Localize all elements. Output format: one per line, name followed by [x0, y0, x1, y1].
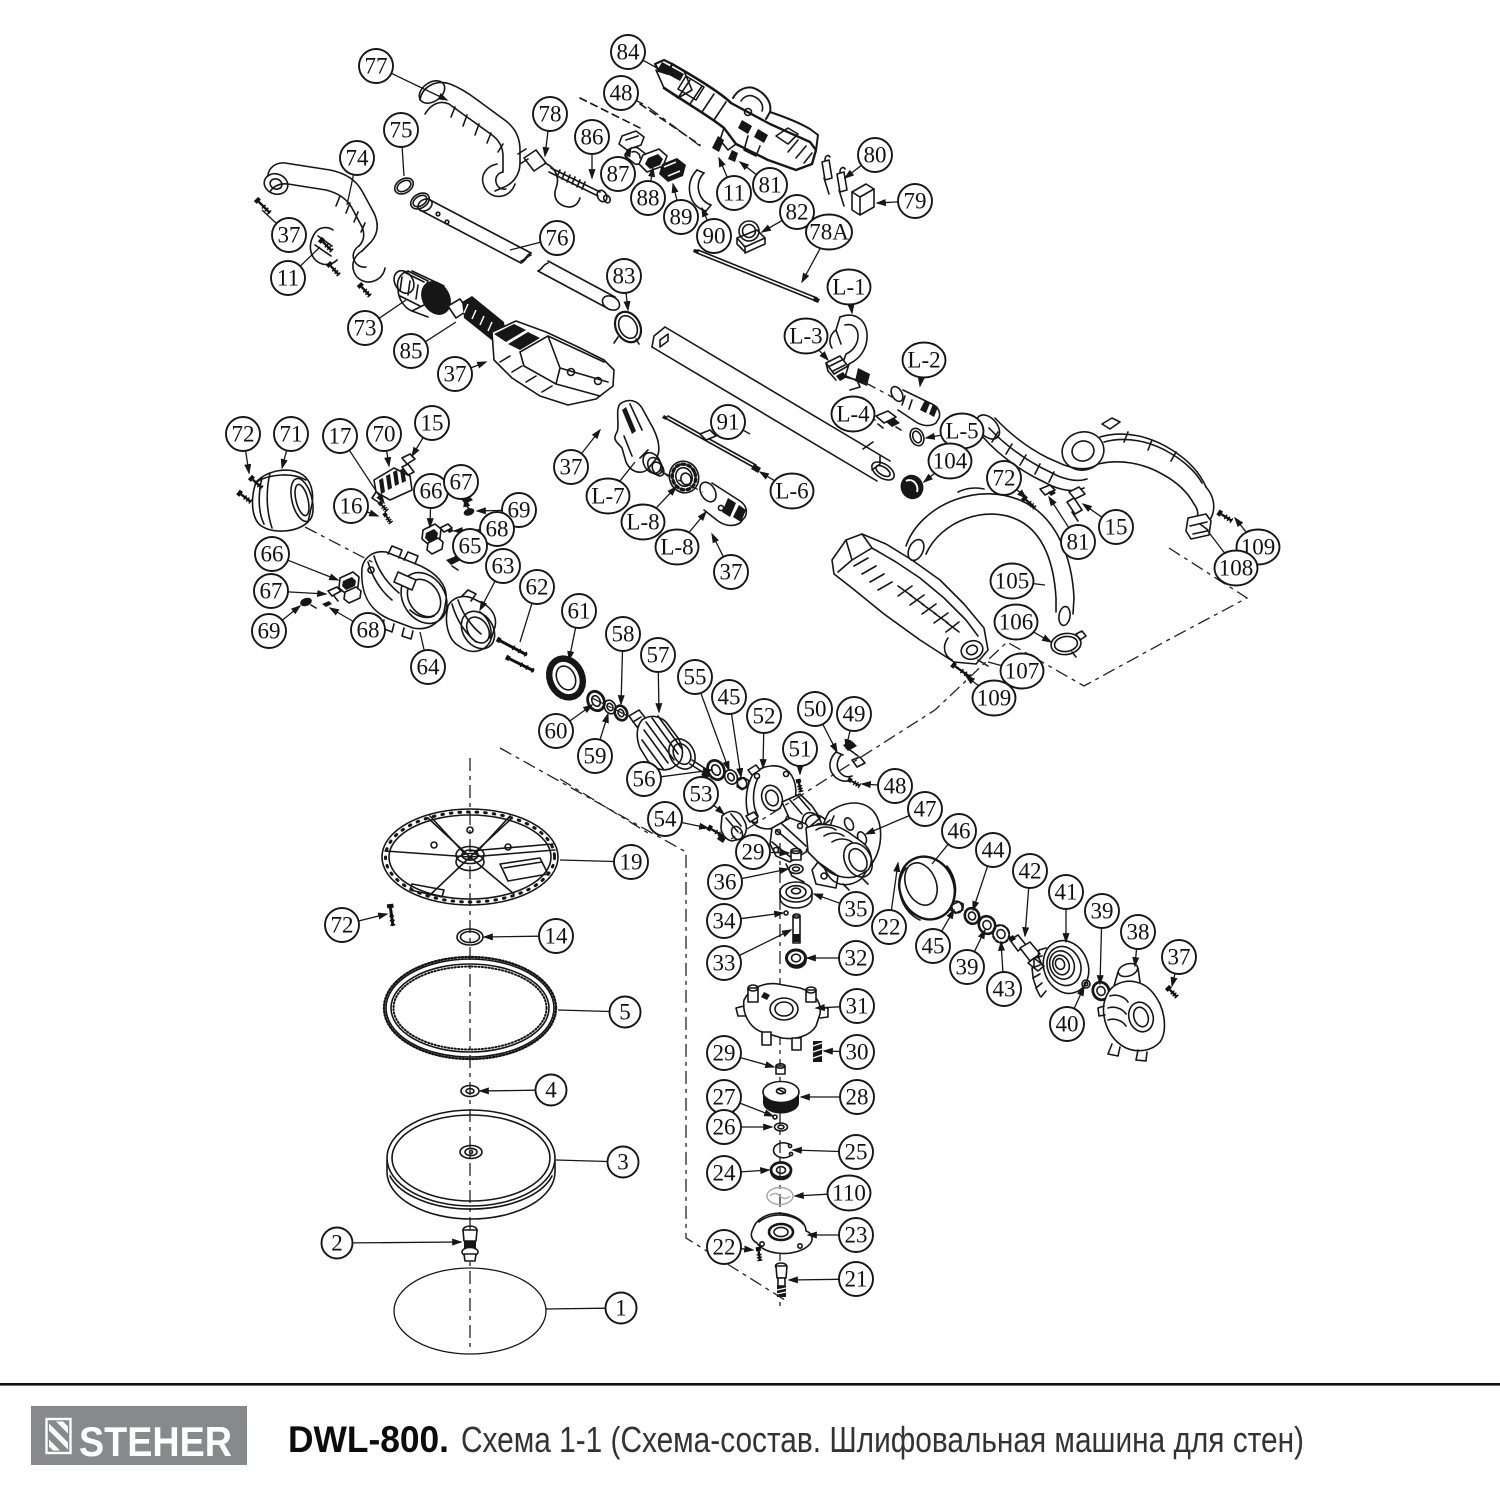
svg-text:78A: 78A — [809, 220, 849, 245]
svg-text:29: 29 — [742, 840, 765, 865]
svg-text:65: 65 — [459, 534, 482, 559]
svg-text:22: 22 — [713, 1235, 736, 1260]
svg-text:78: 78 — [539, 102, 562, 127]
svg-text:85: 85 — [400, 339, 423, 364]
svg-text:80: 80 — [864, 143, 887, 168]
svg-text:27: 27 — [713, 1085, 736, 1110]
svg-text:56: 56 — [633, 767, 656, 792]
svg-text:L-1: L-1 — [832, 275, 865, 300]
svg-text:50: 50 — [804, 697, 827, 722]
svg-text:L-3: L-3 — [789, 324, 822, 349]
svg-text:89: 89 — [670, 205, 693, 230]
svg-text:37: 37 — [444, 362, 467, 387]
svg-text:77: 77 — [365, 54, 388, 79]
svg-text:34: 34 — [713, 909, 737, 934]
svg-text:11: 11 — [723, 181, 745, 206]
svg-text:71: 71 — [280, 422, 303, 447]
svg-text:35: 35 — [845, 897, 868, 922]
svg-text:Схема 1-1 (Схема-состав. Шлифо: Схема 1-1 (Схема-состав. Шлифовальная ма… — [461, 1419, 1304, 1460]
svg-text:39: 39 — [956, 955, 979, 980]
svg-text:88: 88 — [637, 186, 660, 211]
svg-text:41: 41 — [1055, 880, 1078, 905]
svg-text:61: 61 — [568, 599, 591, 624]
svg-text:DWL-800.: DWL-800. — [288, 1419, 449, 1460]
svg-text:29: 29 — [713, 1041, 736, 1066]
svg-text:64: 64 — [417, 655, 441, 680]
svg-text:3: 3 — [617, 1150, 629, 1175]
svg-text:25: 25 — [845, 1140, 868, 1165]
svg-text:66: 66 — [261, 542, 284, 567]
svg-text:75: 75 — [390, 118, 413, 143]
svg-text:49: 49 — [843, 702, 866, 727]
svg-text:32: 32 — [845, 946, 868, 971]
svg-text:L-5: L-5 — [945, 419, 978, 444]
svg-text:55: 55 — [684, 665, 707, 690]
svg-text:81: 81 — [759, 173, 782, 198]
svg-text:37: 37 — [720, 560, 743, 585]
svg-text:37: 37 — [1168, 945, 1191, 970]
svg-text:4: 4 — [545, 1078, 557, 1103]
svg-text:30: 30 — [846, 1040, 869, 1065]
svg-text:31: 31 — [846, 994, 869, 1019]
svg-text:16: 16 — [340, 494, 363, 519]
svg-text:43: 43 — [993, 977, 1016, 1002]
svg-text:44: 44 — [982, 838, 1006, 863]
svg-text:23: 23 — [845, 1223, 868, 1248]
svg-text:107: 107 — [1005, 659, 1040, 684]
svg-text:L-6: L-6 — [775, 479, 808, 504]
svg-text:53: 53 — [690, 782, 713, 807]
svg-text:L-7: L-7 — [591, 484, 624, 509]
svg-text:72: 72 — [331, 913, 354, 938]
svg-text:38: 38 — [1127, 920, 1150, 945]
svg-text:42: 42 — [1019, 859, 1042, 884]
svg-text:68: 68 — [486, 517, 509, 542]
svg-text:17: 17 — [329, 424, 352, 449]
svg-text:62: 62 — [526, 575, 549, 600]
svg-text:5: 5 — [619, 1000, 631, 1025]
svg-text:59: 59 — [584, 744, 607, 769]
svg-text:79: 79 — [904, 189, 927, 214]
svg-text:69: 69 — [258, 619, 281, 644]
svg-text:83: 83 — [613, 264, 636, 289]
svg-text:90: 90 — [703, 224, 726, 249]
svg-text:26: 26 — [713, 1115, 736, 1140]
svg-text:46: 46 — [948, 819, 971, 844]
svg-text:45: 45 — [922, 934, 945, 959]
svg-text:37: 37 — [560, 455, 583, 480]
svg-text:37: 37 — [278, 223, 301, 248]
svg-text:1: 1 — [615, 1296, 627, 1321]
svg-text:2: 2 — [331, 1231, 343, 1256]
svg-text:48: 48 — [884, 774, 907, 799]
svg-text:58: 58 — [612, 622, 635, 647]
svg-text:86: 86 — [581, 125, 604, 150]
svg-text:74: 74 — [346, 146, 370, 171]
svg-text:51: 51 — [789, 737, 812, 762]
svg-text:L-8: L-8 — [626, 510, 659, 535]
svg-text:52: 52 — [753, 704, 776, 729]
svg-text:109: 109 — [977, 686, 1012, 711]
svg-text:15: 15 — [1105, 515, 1128, 540]
svg-text:66: 66 — [420, 479, 443, 504]
svg-text:45: 45 — [718, 685, 741, 710]
svg-text:15: 15 — [421, 411, 444, 436]
svg-text:L-2: L-2 — [907, 348, 940, 373]
svg-text:57: 57 — [647, 643, 670, 668]
svg-text:24: 24 — [713, 1161, 737, 1186]
svg-text:106: 106 — [999, 610, 1034, 635]
svg-text:82: 82 — [786, 200, 809, 225]
svg-text:72: 72 — [232, 422, 255, 447]
svg-text:76: 76 — [546, 226, 569, 251]
svg-text:47: 47 — [914, 797, 937, 822]
svg-text:14: 14 — [545, 924, 569, 949]
svg-text:36: 36 — [714, 870, 737, 895]
svg-text:39: 39 — [1091, 899, 1114, 924]
svg-text:63: 63 — [492, 554, 515, 579]
svg-text:110: 110 — [832, 1181, 866, 1206]
svg-text:L-8: L-8 — [660, 535, 693, 560]
svg-text:48: 48 — [610, 81, 633, 106]
svg-text:67: 67 — [260, 579, 283, 604]
svg-text:11: 11 — [277, 266, 299, 291]
svg-text:28: 28 — [846, 1085, 869, 1110]
svg-text:21: 21 — [845, 1267, 868, 1292]
svg-text:60: 60 — [545, 719, 568, 744]
svg-text:108: 108 — [1219, 556, 1254, 581]
svg-text:73: 73 — [354, 316, 377, 341]
svg-text:19: 19 — [620, 850, 643, 875]
svg-text:67: 67 — [450, 470, 473, 495]
svg-text:84: 84 — [617, 40, 641, 65]
svg-text:81: 81 — [1067, 530, 1090, 555]
svg-text:33: 33 — [713, 951, 736, 976]
svg-text:L-4: L-4 — [836, 402, 870, 427]
svg-text:STEHER: STEHER — [79, 1418, 232, 1465]
svg-text:72: 72 — [993, 466, 1016, 491]
svg-text:68: 68 — [357, 618, 380, 643]
svg-text:105: 105 — [995, 569, 1030, 594]
svg-text:91: 91 — [717, 410, 740, 435]
svg-text:70: 70 — [373, 422, 396, 447]
svg-text:22: 22 — [878, 915, 901, 940]
svg-text:54: 54 — [654, 807, 678, 832]
svg-text:40: 40 — [1056, 1012, 1079, 1037]
svg-text:104: 104 — [933, 449, 968, 474]
svg-text:87: 87 — [607, 162, 630, 187]
